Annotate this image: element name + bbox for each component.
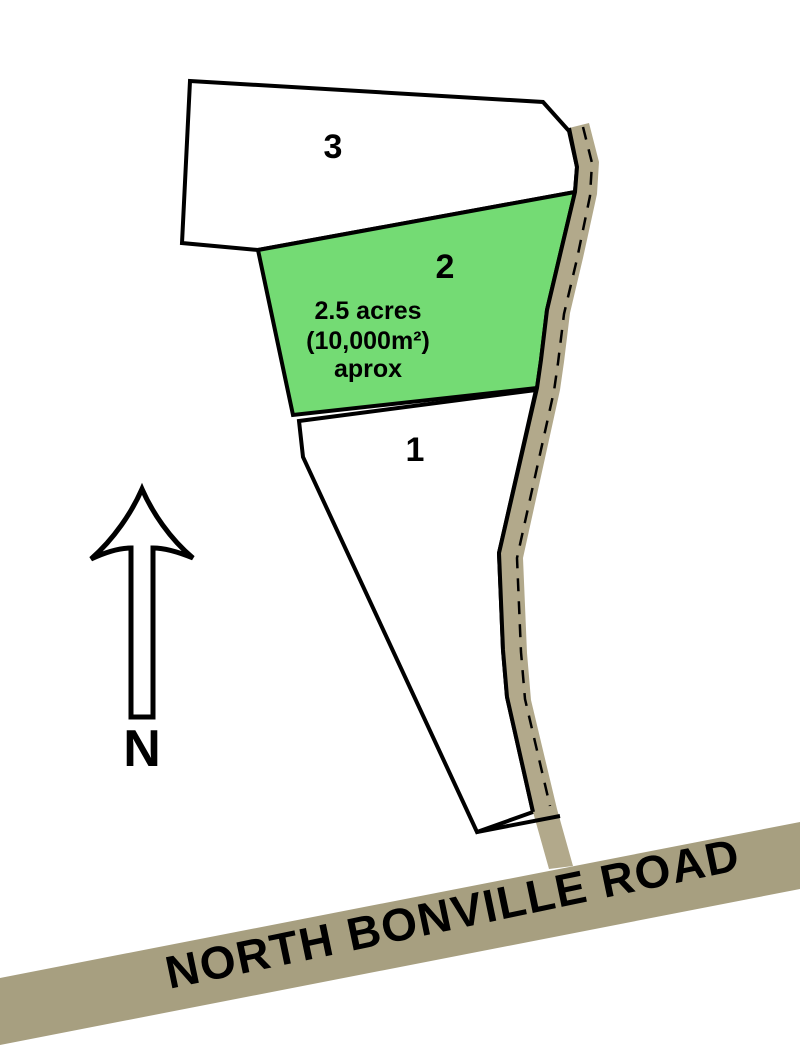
lot-2-area-metric: (10,000m²) xyxy=(306,327,430,355)
site-plan-map: 3 2 1 2.5 acres (10,000m²) aprox N NORTH… xyxy=(0,0,800,1061)
north-arrow-icon xyxy=(91,489,193,717)
lot-1-label: 1 xyxy=(406,431,425,469)
site-plan-canvas: 3 2 1 2.5 acres (10,000m²) aprox N NORTH… xyxy=(0,0,800,1061)
lot-2-area-acres: 2.5 acres xyxy=(314,297,421,325)
north-arrow: N xyxy=(91,489,193,778)
north-label: N xyxy=(123,720,161,778)
lot-2-area-qualifier: aprox xyxy=(334,355,402,383)
lot-2-label: 2 xyxy=(436,248,455,286)
lot-3-label: 3 xyxy=(324,128,343,166)
